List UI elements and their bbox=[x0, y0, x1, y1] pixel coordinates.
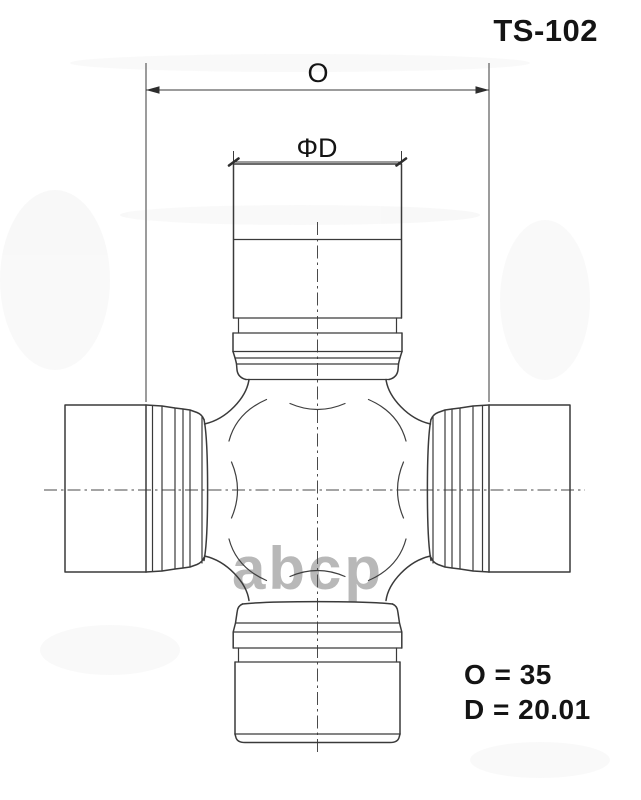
dim-o-arrow-right bbox=[476, 86, 490, 94]
dim-d-label: ΦD bbox=[296, 133, 337, 163]
technical-drawing: abcp bbox=[0, 0, 641, 800]
drawing-page: abcp bbox=[0, 0, 641, 800]
dim-o-label: O bbox=[307, 58, 328, 88]
part-number: TS-102 bbox=[493, 13, 598, 48]
dimension-d: ΦD bbox=[229, 133, 406, 166]
watermark: abcp bbox=[232, 535, 384, 602]
spec-d-value: D = 20.01 bbox=[464, 694, 591, 725]
dim-o-arrow-left bbox=[146, 86, 160, 94]
spec-o-value: O = 35 bbox=[464, 659, 552, 690]
left-bearing-cup bbox=[65, 405, 208, 572]
spec-values: O = 35 D = 20.01 bbox=[464, 659, 591, 725]
right-bearing-cup bbox=[427, 405, 570, 572]
